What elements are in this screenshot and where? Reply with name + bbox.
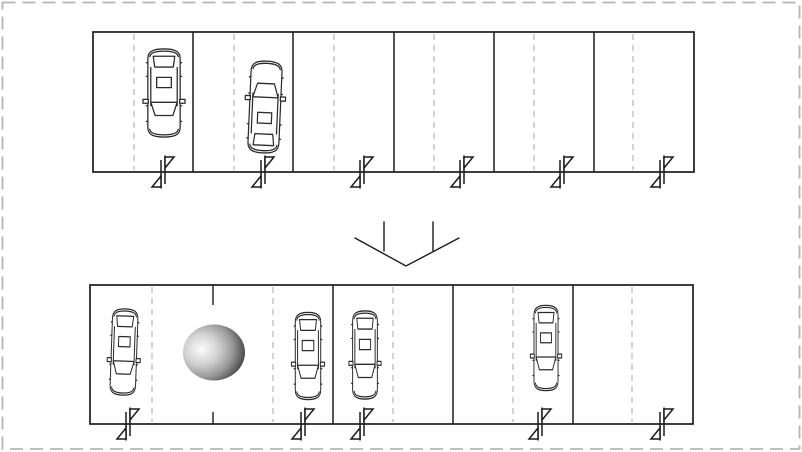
figure-canvas bbox=[0, 0, 802, 452]
parked-car bbox=[349, 311, 381, 399]
obstacle-sphere bbox=[183, 325, 245, 381]
row-outline bbox=[90, 285, 693, 424]
bottom-parking-row bbox=[90, 285, 693, 441]
parked-car bbox=[106, 308, 142, 395]
top-parking-row bbox=[93, 32, 694, 189]
transform-arrow bbox=[355, 222, 459, 266]
parked-car bbox=[143, 49, 185, 137]
down-chevron-arrow bbox=[355, 238, 459, 266]
parking-diagram bbox=[0, 0, 802, 452]
parked-car bbox=[291, 312, 324, 399]
parked-car bbox=[530, 305, 561, 390]
parked-car bbox=[243, 60, 287, 154]
